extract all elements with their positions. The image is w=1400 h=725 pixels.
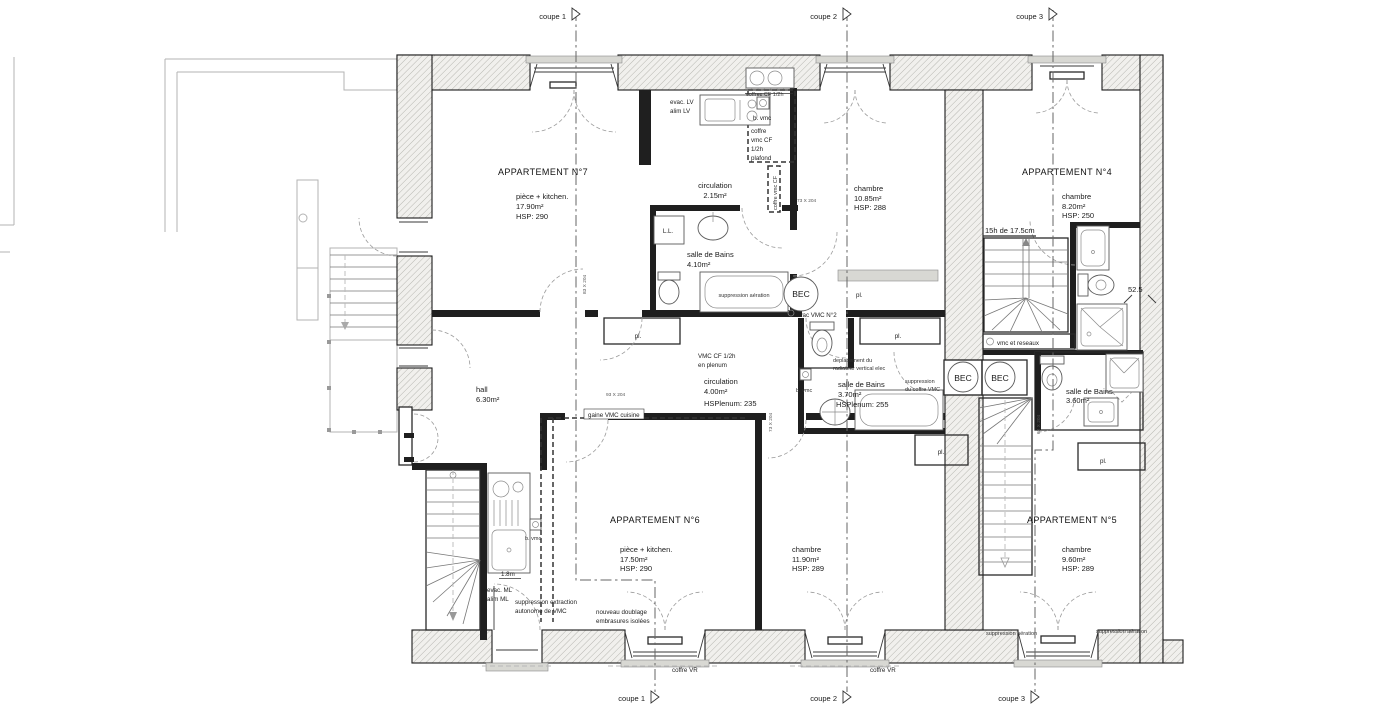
apt7-circulation: circulation: [698, 181, 732, 190]
apt7-room-area: 17.90m²: [516, 202, 544, 211]
apt6-room-label: pièce + kitchen.: [620, 545, 672, 554]
apt4-vmc-strip: vmc et reseaux: [997, 340, 1040, 347]
apt4-staircase: [984, 238, 1068, 332]
pl-closet-c: pl.: [938, 449, 945, 456]
mid-bec-1: BEC: [954, 373, 971, 383]
apt5-bains: salle de Bains: [1066, 387, 1113, 396]
apt5-chambre: chambre: [1062, 545, 1091, 554]
coupe1-bottom-marker: [651, 691, 659, 703]
coffre-vr-2: coffre VR: [870, 667, 896, 674]
apt6-suppression-1: suppression extraction: [515, 599, 577, 606]
radiateur-note-1: deplacement du: [833, 358, 872, 364]
coupe3-bottom-label: coupe 3: [998, 694, 1025, 703]
apt6-chambre: chambre: [792, 545, 821, 554]
apt4-dim-52: 52.5: [1128, 285, 1143, 294]
terrace-outline: [0, 57, 397, 252]
mid-door-dim-b: 73 X 204: [768, 412, 774, 432]
floor-plan-drawing: coupe 1 coupe 2 coupe 3 coupe 1 coupe 2 …: [0, 0, 1400, 725]
apt6-room-area: 17.50m²: [620, 555, 648, 564]
vmc-cf-note: VMC CF 1/2h: [698, 353, 736, 360]
apt5-labels: APPARTEMENT N°5 chambre 9.60m² HSP: 289 …: [986, 387, 1147, 637]
coupe2-bottom-label: coupe 2: [810, 694, 837, 703]
mid-b-vmc: b. vmc: [796, 388, 812, 394]
circulation4-area: 4.00m²: [704, 387, 728, 396]
pl-closet-a: pl.: [635, 333, 642, 340]
hall-staircase: [426, 470, 480, 630]
apt5-suppression-1: suppression aération: [986, 631, 1037, 637]
apt6-doublage-1: nouveau doublage: [596, 609, 647, 616]
pl-closet-b: pl.: [895, 333, 902, 340]
circulation4-label: circulation: [704, 377, 738, 386]
apt7-coffre-top: coffres CF 1/2h: [746, 92, 784, 98]
apt6-dim-18: 1.8m: [501, 571, 515, 578]
coupe2-top-label: coupe 2: [810, 12, 837, 21]
apt4-stair-note: 15h de 17.5cm: [985, 226, 1035, 235]
apt5-suppression-2: suppression aération: [1096, 629, 1147, 635]
apt4-chambre-area: 8.20m²: [1062, 202, 1086, 211]
apt4-title: APPARTEMENT N°4: [1022, 167, 1112, 177]
apt7-bains-area: 4.10m²: [687, 260, 711, 269]
apt6-evac-ml: evac. ML: [487, 587, 513, 594]
mid-bains: salle de Bains: [838, 380, 885, 389]
apt7-bec: BEC: [792, 289, 809, 299]
coupe1-bottom-label: coupe 1: [618, 694, 645, 703]
apt5-door-dim: 62 X 204: [1036, 414, 1042, 434]
apt5-chambre-hsp: HSP: 289: [1062, 564, 1094, 573]
mid-bains-area: 3.70m²: [838, 390, 862, 399]
apt7-bains: salle de Bains: [687, 250, 734, 259]
interior-door-swings: [540, 208, 1075, 462]
apt7-coffre-1: coffre: [751, 128, 767, 135]
circulation4-hsp: HSPlenum: 235: [704, 399, 757, 408]
coupe3-bottom-marker: [1031, 691, 1039, 703]
apt5-title: APPARTEMENT N°5: [1027, 515, 1117, 525]
apt5-staircase: [979, 398, 1032, 575]
apt7-coffre-3: 1/2h: [751, 146, 764, 153]
apt7-coffre-vert: coffre vmc CF: [773, 175, 779, 210]
apt6-doublage-2: embrasures isolées: [596, 618, 650, 625]
apt6-chambre-area: 11.90m²: [792, 555, 819, 564]
apt7-room-hsp: HSP: 290: [516, 212, 548, 221]
mid-bec-2: BEC: [991, 373, 1008, 383]
coffre-vr-1: coffre VR: [672, 667, 698, 674]
apt7-door-dim: 73 X 204: [797, 198, 817, 204]
coffre-vmc-note-2: du coffre VMC: [905, 387, 940, 393]
apt7-b-vmc: b. vmc: [753, 115, 771, 122]
coupe3-top-label: coupe 3: [1016, 12, 1043, 21]
apt7-chambre-area: 10.85m²: [854, 194, 882, 203]
apt5-chambre-area: 9.60m²: [1062, 555, 1086, 564]
apt7-alim-lv: alim LV: [670, 108, 691, 115]
apt7-coffre-4: plafond: [751, 155, 772, 162]
apt7-pl: pl.: [856, 292, 863, 299]
mid-door-dim-a: 93 X 204: [606, 392, 626, 398]
mid-wc-fixtures: [800, 322, 834, 380]
balcony-exterior-stair: [297, 180, 397, 434]
apt7-circulation-area: 2.15m²: [703, 191, 727, 200]
apt6-kitchen: [488, 473, 541, 573]
radiateur-note-2: radiateur vertical elec: [833, 366, 886, 372]
hall-area: 6.30m²: [476, 395, 500, 404]
floor-plan-canvas: coupe 1 coupe 2 coupe 3 coupe 1 coupe 2 …: [0, 0, 1400, 725]
apt5-pl: pl.: [1100, 458, 1107, 465]
hall-label: hall: [476, 385, 488, 394]
apt5-bains-area: 3.60m²: [1066, 396, 1090, 405]
apt6-suppression-2: autonome de VMC: [515, 608, 567, 615]
apt7-coffre-2: vmc CF: [751, 137, 773, 144]
apt7-evac-vmc: evac VMC N°2: [796, 312, 837, 319]
apt7-evac-lv: evac. LV: [670, 99, 694, 106]
apt7-room-label: pièce + kitchen.: [516, 192, 568, 201]
coupe1-top-label: coupe 1: [539, 12, 566, 21]
gaine-vmc-label: gaine VMC cuisine: [588, 412, 640, 419]
apt6-b-vmc: b. vmc: [525, 536, 541, 542]
mid-bains-hsp: HSPlenum: 255: [836, 400, 889, 409]
apt7-title: APPARTEMENT N°7: [498, 167, 588, 177]
apt7-suppression: suppression aération: [718, 293, 769, 299]
apt6-title: APPARTEMENT N°6: [610, 515, 700, 525]
apt6-alim-ml: alim ML: [487, 596, 509, 603]
en-plenum-note: en plenum: [698, 362, 727, 369]
apt7-door-dim-b: 83 X 204: [582, 274, 588, 294]
apt7-lavelinge: L.L.: [663, 228, 674, 235]
apt4-chambre: chambre: [1062, 192, 1091, 201]
coupe2-bottom-marker: [843, 691, 851, 703]
apt6-chambre-hsp: HSP: 289: [792, 564, 824, 573]
apt7-chambre-hsp: HSP: 288: [854, 203, 886, 212]
apt7-chambre: chambre: [854, 184, 883, 193]
coffre-vmc-note-1: suppression: [905, 379, 935, 385]
apt6-room-hsp: HSP: 290: [620, 564, 652, 573]
apt4-chambre-hsp: HSP: 250: [1062, 211, 1094, 220]
